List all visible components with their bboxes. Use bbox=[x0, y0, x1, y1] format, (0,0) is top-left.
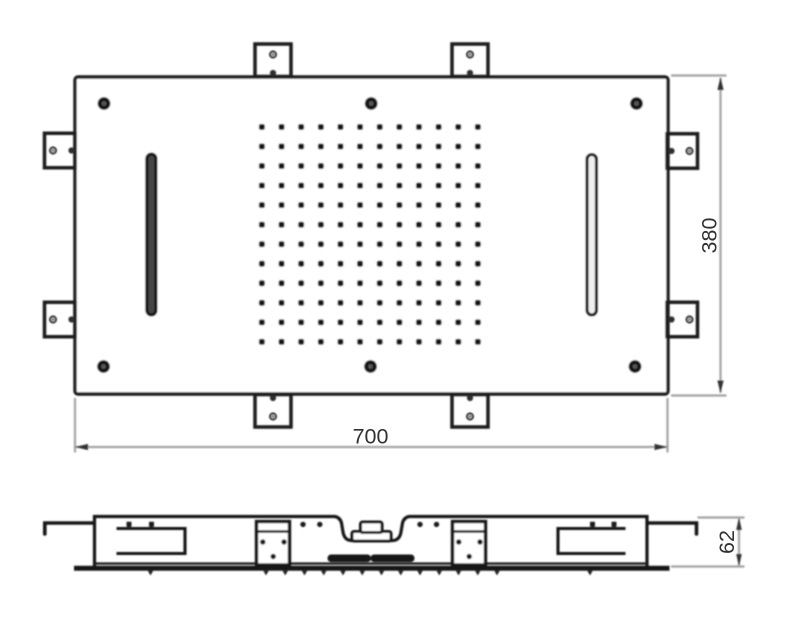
svg-text:62: 62 bbox=[715, 530, 739, 554]
svg-text:380: 380 bbox=[698, 218, 722, 254]
svg-text:700: 700 bbox=[353, 425, 389, 449]
